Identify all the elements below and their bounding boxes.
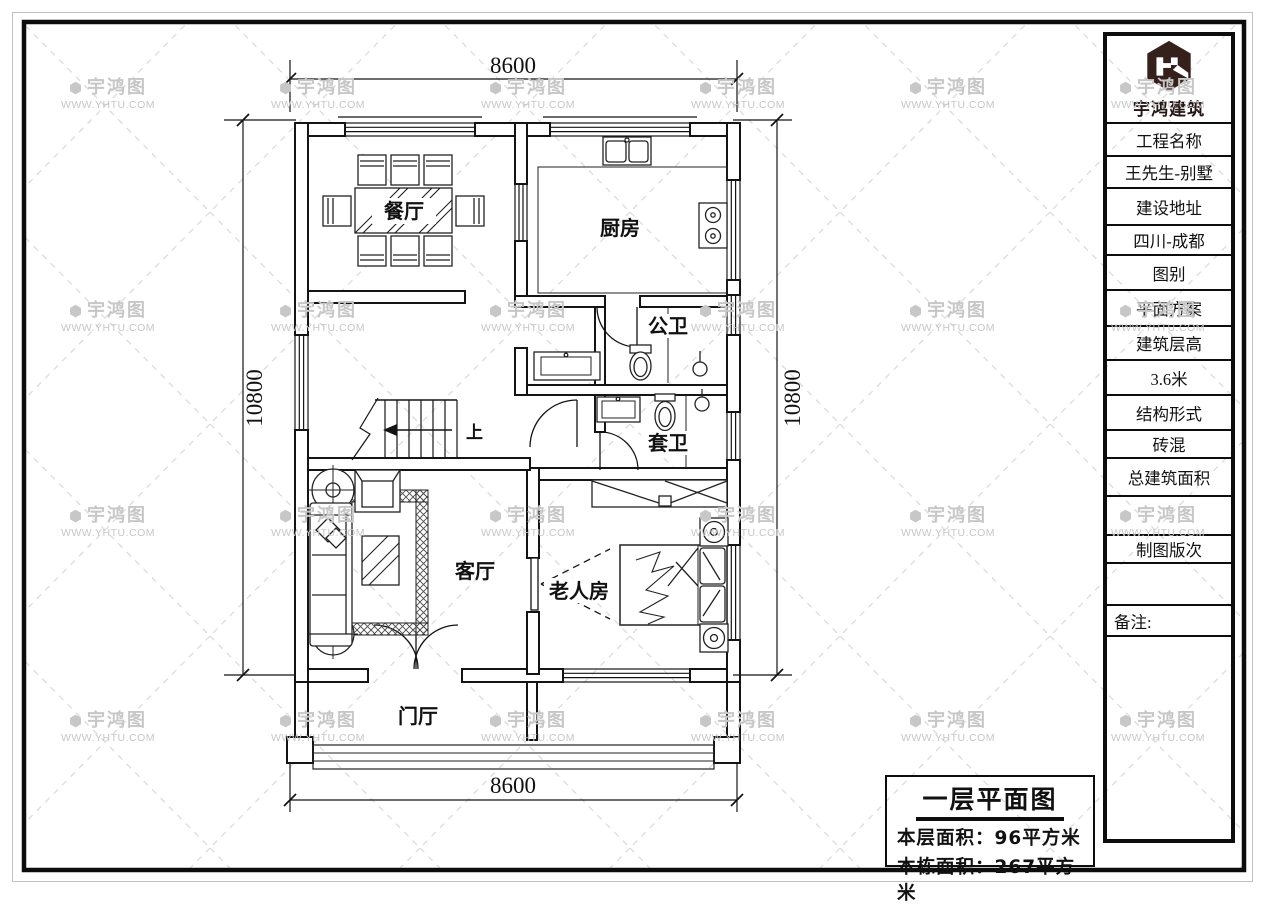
tb-row-structure-value: 砖混 xyxy=(1107,431,1231,459)
room-label-ensuite-bath: 套卫 xyxy=(648,431,688,455)
tb-row-version-value xyxy=(1107,564,1231,606)
tb-row-type-label: 图别 xyxy=(1107,256,1231,291)
floor-plan-drawing: 上 xyxy=(0,0,1265,894)
room-label-living: 客厅 xyxy=(454,559,495,583)
company-logo-block: 宇鸿建筑 xyxy=(1107,36,1231,124)
company-name: 宇鸿建筑 xyxy=(1133,95,1205,120)
tb-row-remarks-value xyxy=(1107,637,1231,839)
room-label-kitchen: 厨房 xyxy=(600,216,640,240)
room-label-foyer: 门厅 xyxy=(398,704,438,728)
floor-area-text: 本层面积：96平方米 xyxy=(897,824,1093,850)
tb-row-address-value: 四川-成都 xyxy=(1107,226,1231,256)
dim-top: 8600 xyxy=(490,53,536,78)
room-label-dining: 餐厅 xyxy=(384,199,424,223)
drawing-title: 一层平面图 xyxy=(916,780,1063,821)
building-area-text: 本栋面积：267平方米 xyxy=(897,853,1093,905)
drawing-title-box: 一层平面图 本层面积：96平方米 本栋面积：267平方米 xyxy=(885,775,1095,867)
tb-row-address-label: 建设地址 xyxy=(1107,189,1231,226)
room-label-public-bath: 公卫 xyxy=(648,314,688,338)
tb-row-project-label: 工程名称 xyxy=(1107,124,1231,157)
dim-right: 10800 xyxy=(780,369,805,427)
tb-row-project-value: 王先生-别墅 xyxy=(1107,157,1231,189)
dim-left: 10800 xyxy=(242,369,267,427)
stairs-up-label: 上 xyxy=(466,423,483,443)
tb-row-height-value: 3.6米 xyxy=(1107,361,1231,396)
tb-row-structure-label: 结构形式 xyxy=(1107,396,1231,431)
dim-bottom: 8600 xyxy=(490,773,536,798)
company-logo-icon xyxy=(1142,38,1196,94)
tb-row-area-label: 总建筑面积 xyxy=(1107,459,1231,497)
tb-row-version-label: 制图版次 xyxy=(1107,536,1231,564)
title-block-panel: 宇鸿建筑 工程名称 王先生-别墅 建设地址 四川-成都 图别 平面方案 建筑层高… xyxy=(1103,32,1235,843)
tb-row-area-value xyxy=(1107,497,1231,536)
room-label-elder: 老人房 xyxy=(549,579,609,603)
tb-row-height-label: 建筑层高 xyxy=(1107,327,1231,361)
tb-row-remarks-label: 备注: xyxy=(1107,606,1231,637)
tb-row-type-value: 平面方案 xyxy=(1107,291,1231,327)
